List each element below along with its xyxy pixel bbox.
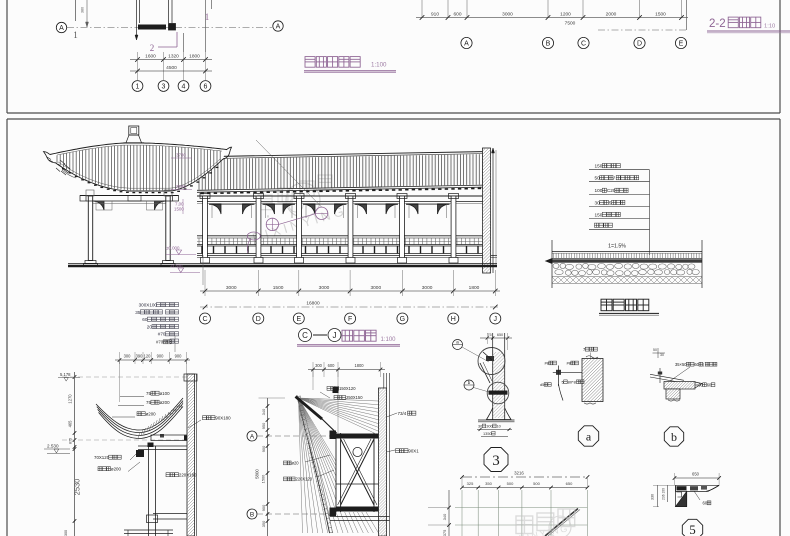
svg-text:1200: 1200 xyxy=(560,12,571,18)
svg-text:50: 50 xyxy=(595,176,601,181)
svg-text:1500: 1500 xyxy=(655,12,666,18)
svg-text:650: 650 xyxy=(566,481,573,486)
svg-text:50: 50 xyxy=(653,348,657,352)
svg-text:3730: 3730 xyxy=(176,153,186,158)
svg-text:75: 75 xyxy=(146,391,151,396)
svg-text:3000: 3000 xyxy=(370,285,381,291)
svg-text:A: A xyxy=(250,433,255,440)
svg-text:ø200: ø200 xyxy=(111,467,122,472)
svg-text:600: 600 xyxy=(453,12,461,18)
svg-text:90X180: 90X180 xyxy=(215,416,231,421)
svg-text:4: 4 xyxy=(182,84,186,91)
svg-text:#70: #70 xyxy=(158,332,166,337)
svg-text:3000: 3000 xyxy=(422,285,433,291)
svg-text:2935: 2935 xyxy=(176,184,186,189)
svg-text:1600: 1600 xyxy=(145,54,156,60)
svg-text:340: 340 xyxy=(261,408,266,415)
svg-text:C: C xyxy=(581,41,586,48)
svg-text:ø100: ø100 xyxy=(160,391,171,396)
svg-text:D: D xyxy=(637,41,642,48)
svg-text:C: C xyxy=(302,331,308,340)
svg-text:D: D xyxy=(256,316,261,323)
svg-text:600: 600 xyxy=(328,363,336,368)
svg-text:5: 5 xyxy=(689,522,696,536)
svg-text:1: 1 xyxy=(136,84,140,91)
svg-text:350: 350 xyxy=(485,481,492,486)
svg-text:#70: #70 xyxy=(156,340,164,345)
svg-text:875: 875 xyxy=(69,438,73,444)
svg-text:ø200: ø200 xyxy=(160,400,171,405)
svg-text:3: 3 xyxy=(492,453,500,469)
svg-text:120: 120 xyxy=(144,354,152,359)
svg-text:E: E xyxy=(679,41,684,48)
svg-text:1:10: 1:10 xyxy=(764,24,775,30)
svg-text:5800: 5800 xyxy=(255,469,260,479)
svg-text:C20: C20 xyxy=(607,188,616,193)
svg-text:±0.000: ±0.000 xyxy=(166,246,180,251)
svg-text:380: 380 xyxy=(81,7,85,13)
svg-text:900: 900 xyxy=(261,504,266,511)
svg-text:325: 325 xyxy=(467,481,474,486)
svg-text:1800: 1800 xyxy=(354,363,364,368)
svg-text:465: 465 xyxy=(68,420,73,428)
svg-text:375: 375 xyxy=(442,530,447,536)
svg-text:1=1.5%: 1=1.5% xyxy=(608,244,626,250)
svg-text:300: 300 xyxy=(486,424,493,429)
svg-text:900: 900 xyxy=(157,354,165,359)
svg-text:3: 3 xyxy=(162,84,166,91)
svg-text:500: 500 xyxy=(533,481,540,486)
svg-text:3000: 3000 xyxy=(502,12,513,18)
svg-text:1800: 1800 xyxy=(189,54,200,60)
svg-text:650: 650 xyxy=(692,472,700,477)
svg-text:30: 30 xyxy=(660,353,664,357)
svg-text:F: F xyxy=(348,316,352,323)
svg-text:330: 330 xyxy=(651,494,655,500)
svg-text:A: A xyxy=(59,25,64,32)
svg-text:390: 390 xyxy=(136,354,144,359)
svg-text:910: 910 xyxy=(431,12,439,18)
svg-text:35×50: 35×50 xyxy=(675,362,687,367)
svg-text:ø200: ø200 xyxy=(146,412,157,417)
svg-text:B: B xyxy=(250,511,254,518)
svg-text:16800: 16800 xyxy=(306,301,320,307)
svg-text:900: 900 xyxy=(261,445,266,452)
svg-text:7500: 7500 xyxy=(565,21,576,27)
svg-text:1270: 1270 xyxy=(68,394,73,404)
svg-text:1:100: 1:100 xyxy=(371,62,387,69)
svg-text:650: 650 xyxy=(497,333,503,337)
svg-text:G: G xyxy=(400,316,405,323)
svg-text:3216: 3216 xyxy=(514,471,524,476)
svg-text:300X100: 300X100 xyxy=(139,303,158,308)
svg-text:d5: d5 xyxy=(540,383,544,387)
svg-text:90X1: 90X1 xyxy=(408,449,419,454)
svg-text:250X150: 250X150 xyxy=(346,395,363,400)
svg-text:3000: 3000 xyxy=(319,285,330,291)
svg-text:2000: 2000 xyxy=(606,12,617,18)
svg-text:500: 500 xyxy=(507,481,514,486)
svg-text:20: 20 xyxy=(147,324,153,329)
svg-text:100: 100 xyxy=(595,188,603,193)
svg-text:1500: 1500 xyxy=(273,285,284,291)
svg-text:a: a xyxy=(586,429,592,443)
svg-text:6: 6 xyxy=(204,84,208,91)
svg-text:J: J xyxy=(333,331,337,340)
svg-text:2: 2 xyxy=(150,43,155,53)
svg-text:73/4: 73/4 xyxy=(398,411,407,416)
svg-text:1320: 1320 xyxy=(168,54,179,60)
svg-text:300: 300 xyxy=(124,354,132,359)
svg-text:1350: 1350 xyxy=(483,431,492,436)
svg-text:1:100: 1:100 xyxy=(381,337,397,343)
svg-text:2530: 2530 xyxy=(73,479,82,496)
svg-text:35: 35 xyxy=(135,310,141,315)
svg-text:5.178: 5.178 xyxy=(60,372,71,377)
svg-text:150: 150 xyxy=(595,164,603,169)
svg-text:A: A xyxy=(464,41,469,48)
svg-text:2.530: 2.530 xyxy=(47,444,59,449)
svg-text:J: J xyxy=(494,316,498,323)
svg-text:900: 900 xyxy=(175,354,183,359)
svg-text:1: 1 xyxy=(73,30,78,40)
svg-text:300: 300 xyxy=(315,363,323,368)
svg-text:150X120: 150X120 xyxy=(339,386,356,391)
svg-text:3000: 3000 xyxy=(226,285,237,291)
svg-text:1: 1 xyxy=(205,12,210,22)
svg-text:350: 350 xyxy=(261,520,266,527)
svg-text:950: 950 xyxy=(261,422,266,429)
svg-text:C: C xyxy=(202,316,207,323)
svg-text:4500: 4500 xyxy=(166,65,177,71)
svg-text:A: A xyxy=(276,24,281,31)
svg-text:-0.300: -0.300 xyxy=(170,264,183,269)
svg-text:2-2: 2-2 xyxy=(709,18,726,30)
svg-text:b: b xyxy=(671,430,677,444)
svg-text:150: 150 xyxy=(595,212,603,217)
svg-text:340: 340 xyxy=(442,513,447,520)
svg-text:ø20: ø20 xyxy=(292,461,300,466)
svg-text:E: E xyxy=(296,316,301,323)
svg-text:75: 75 xyxy=(487,333,491,337)
svg-text:70X120: 70X120 xyxy=(94,455,110,460)
svg-text:30: 30 xyxy=(595,200,601,205)
svg-text:300: 300 xyxy=(64,530,68,536)
svg-text:1500: 1500 xyxy=(261,474,266,483)
svg-text:220X180: 220X180 xyxy=(179,473,197,478)
svg-text:236 100: 236 100 xyxy=(662,488,666,500)
svg-text:B: B xyxy=(546,41,551,48)
svg-text:75: 75 xyxy=(146,400,151,405)
svg-text:H: H xyxy=(451,316,456,323)
svg-text:60: 60 xyxy=(142,317,148,322)
svg-text:80*8: 80*8 xyxy=(568,379,577,384)
svg-text:1800: 1800 xyxy=(469,285,480,291)
svg-text:220X120: 220X120 xyxy=(296,477,313,482)
